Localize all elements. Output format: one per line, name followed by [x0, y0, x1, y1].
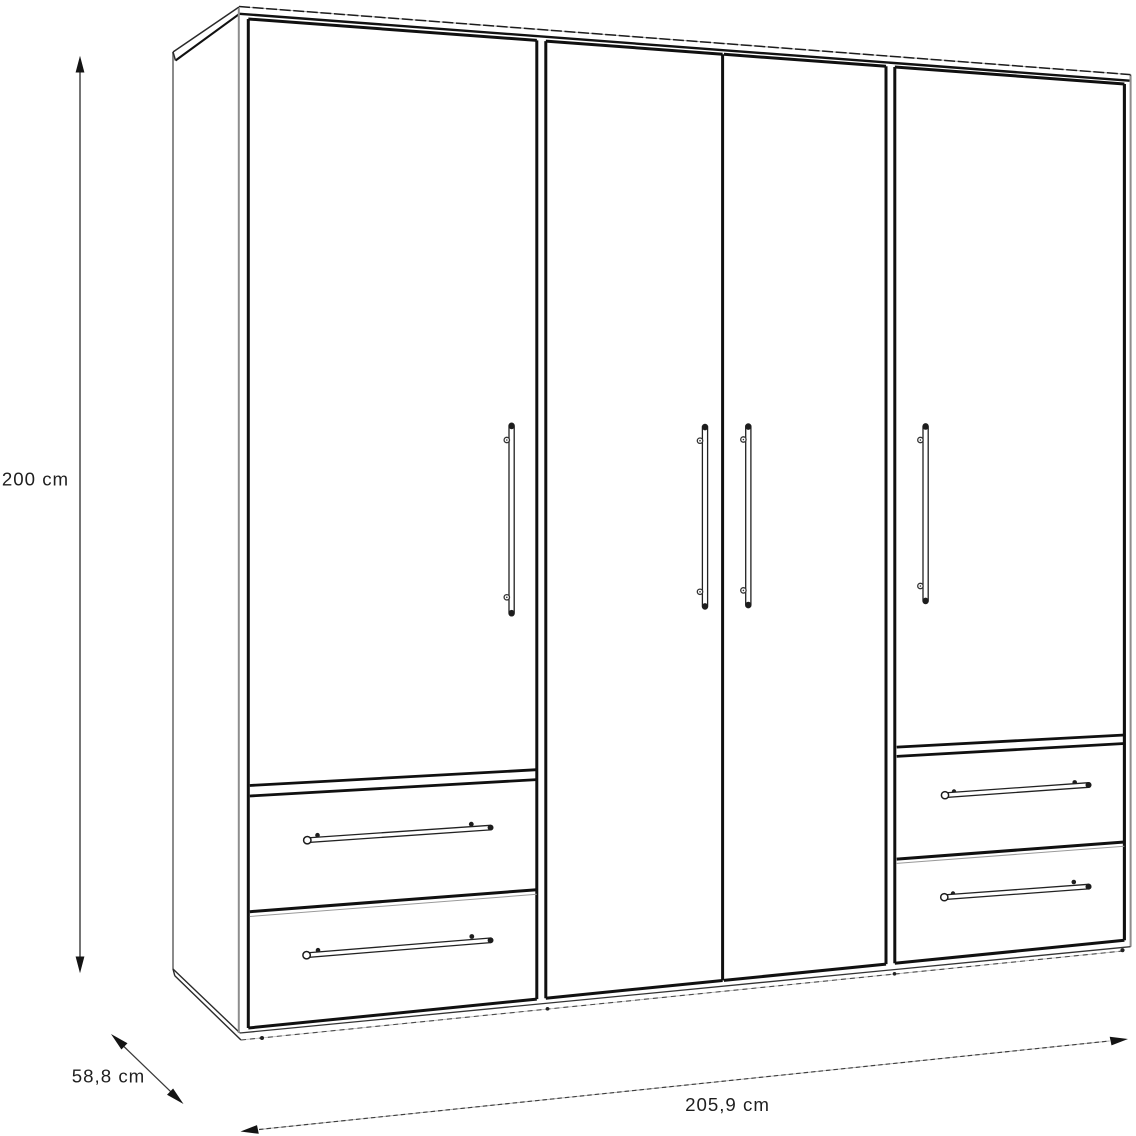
svg-text:58,8 cm: 58,8 cm — [72, 1066, 145, 1087]
svg-text:200 cm: 200 cm — [2, 469, 69, 490]
svg-text:205,9 cm: 205,9 cm — [685, 1094, 770, 1115]
